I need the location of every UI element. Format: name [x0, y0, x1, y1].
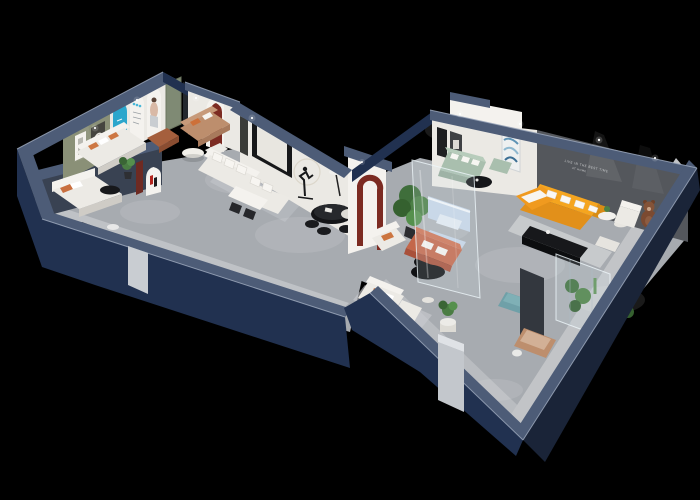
small-side-table	[422, 297, 434, 303]
frame-inner	[453, 140, 459, 149]
table-shadow	[182, 154, 204, 162]
poster-figure-cloth	[150, 115, 158, 128]
bath-fixture	[512, 350, 522, 357]
n-logo-black	[154, 177, 157, 187]
n-logo-red	[150, 175, 153, 185]
console-vase	[546, 230, 550, 234]
side-table-plant	[604, 206, 610, 212]
table-decor	[476, 179, 479, 182]
right-door-strip	[438, 342, 464, 412]
artwork-thin-frame	[240, 116, 248, 156]
poster-figure-head	[152, 98, 157, 103]
glass-partition	[412, 160, 480, 298]
showroom-floorplan-render: LIVE IN THE BEST TIME AT HOME	[0, 0, 700, 500]
floorplan-svg: LIVE IN THE BEST TIME AT HOME	[0, 0, 700, 500]
artwork-frames-right-1	[437, 127, 447, 158]
maroon-slab	[136, 160, 143, 195]
side-table-1	[598, 212, 616, 220]
stool	[107, 224, 119, 230]
n-logo-arch-panel	[146, 167, 161, 196]
round-coffee-table	[100, 186, 120, 195]
